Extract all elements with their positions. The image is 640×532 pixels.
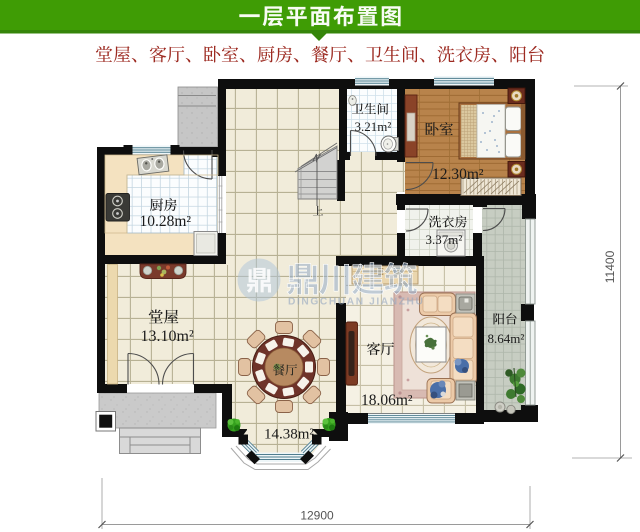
svg-text:8.64m²: 8.64m² [488,331,525,346]
svg-text:10.28m²: 10.28m² [140,213,192,230]
svg-text:12.30m²: 12.30m² [432,166,484,183]
svg-text:12900: 12900 [300,509,334,523]
svg-text:3.37m²: 3.37m² [426,232,463,247]
svg-text:DINGCHUAN JIANZHU: DINGCHUAN JIANZHU [288,297,424,308]
svg-text:11400: 11400 [603,250,617,283]
svg-text:13.10m²: 13.10m² [141,328,194,345]
svg-text:3.21m²: 3.21m² [355,119,392,134]
svg-text:14.38m²: 14.38m² [264,427,314,443]
svg-text:18.06m²: 18.06m² [361,392,413,409]
